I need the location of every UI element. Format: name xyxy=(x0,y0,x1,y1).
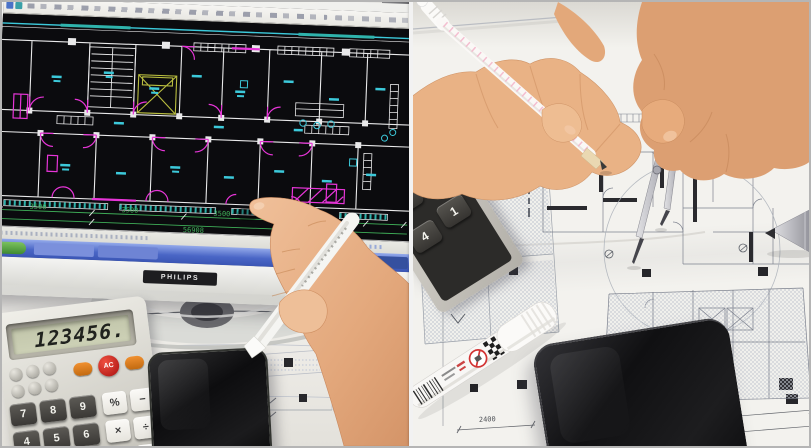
thumb xyxy=(279,290,327,333)
metal-pen-tip xyxy=(765,208,811,258)
pointing-hand xyxy=(2,2,409,446)
right-photo-panel: 9000 30700 2400 xyxy=(413,2,811,446)
pencil-hand xyxy=(413,58,641,200)
drafting-hands xyxy=(413,2,811,446)
pinky-finger xyxy=(554,2,605,62)
compass-hand xyxy=(633,2,811,180)
photo-collage: 3500 3500 3500 3500 56908 xyxy=(0,0,811,448)
compass-pinch xyxy=(642,100,684,144)
left-photo-panel: 3500 3500 3500 3500 56908 xyxy=(2,2,409,446)
